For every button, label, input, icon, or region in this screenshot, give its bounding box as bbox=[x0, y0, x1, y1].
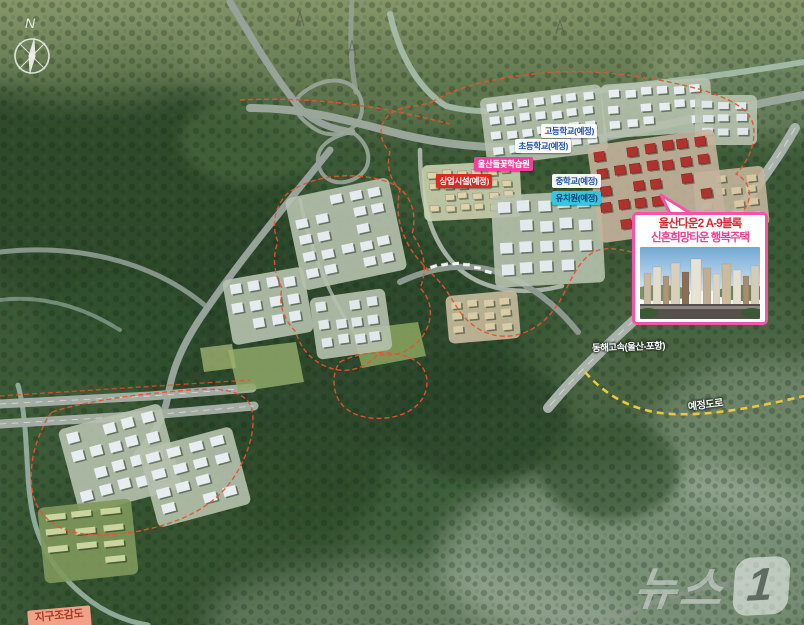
building-cluster bbox=[222, 266, 314, 345]
aerial-masterplan-map: N 고등학교(예정) 초등학교(예정) 울산들꽃학습원 상업시설(예정) 중학교… bbox=[0, 0, 804, 625]
news1-watermark: 뉴스 1 bbox=[631, 553, 792, 619]
watermark-text: 뉴스 bbox=[631, 553, 730, 619]
building-cluster-greenhouses bbox=[37, 498, 138, 583]
compass-rose: N bbox=[8, 12, 58, 84]
watermark-number-badge: 1 bbox=[731, 556, 790, 617]
label-kindergarten: 유치원(예정) bbox=[552, 191, 601, 205]
callout-rendering-image bbox=[640, 247, 760, 319]
a9-block-callout: 울산다운2 A-9블록 신혼희망타운 행복주택 bbox=[632, 212, 768, 325]
callout-block-title: 울산다운2 A-9블록 bbox=[637, 217, 763, 231]
label-middle-school: 중학교(예정) bbox=[552, 174, 601, 188]
label-flower-learning-center: 울산들꽃학습원 bbox=[474, 157, 533, 171]
compass-north-letter: N bbox=[25, 15, 36, 31]
label-elementary-school: 초등학교(예정) bbox=[515, 139, 571, 153]
label-commercial-facility: 상업시설(예정) bbox=[436, 174, 492, 188]
building-cluster bbox=[309, 288, 393, 360]
compass-needle bbox=[26, 37, 38, 76]
callout-project-name: 신혼희망타운 행복주택 bbox=[637, 231, 763, 245]
label-high-school: 고등학교(예정) bbox=[541, 124, 597, 138]
